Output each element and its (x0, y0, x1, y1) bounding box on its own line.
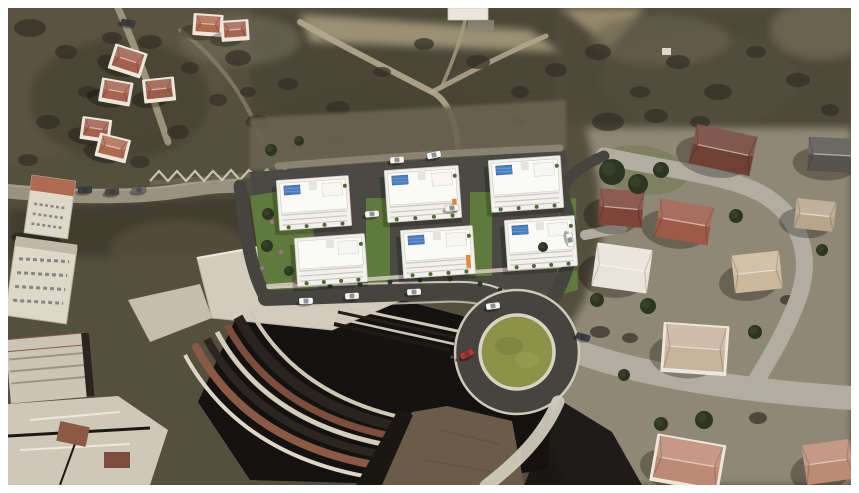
car-windshield (303, 299, 308, 304)
tree (261, 240, 273, 252)
penthouse (534, 162, 555, 176)
aerial-scene-svg (8, 8, 851, 485)
stair-core (326, 240, 335, 249)
grass-texture (515, 352, 539, 368)
tree (748, 325, 762, 339)
bush (14, 19, 46, 37)
bush (18, 154, 38, 166)
bush (138, 35, 162, 49)
car-windshield (349, 293, 354, 298)
hilltop-building (448, 8, 488, 20)
car-windshield (109, 189, 114, 194)
render-detail (478, 282, 483, 287)
solar-panel (392, 175, 409, 185)
penthouse (446, 232, 467, 246)
bush (630, 86, 650, 98)
car-windshield (125, 20, 131, 26)
bush (749, 412, 767, 424)
tree (628, 174, 648, 194)
bush (209, 94, 227, 106)
bush (622, 333, 638, 343)
pedestrian (450, 355, 453, 358)
render-detail (655, 164, 664, 173)
car-windshield (490, 303, 496, 308)
render-detail (262, 241, 269, 248)
tree (284, 266, 294, 276)
bush (585, 44, 611, 60)
light-mottle (590, 15, 730, 65)
hilltop-pad (468, 20, 494, 30)
stair-core (417, 172, 426, 181)
tree (294, 136, 304, 146)
tree (262, 208, 274, 220)
render-detail (285, 267, 291, 273)
timber-accent (466, 255, 471, 268)
bush (181, 62, 199, 74)
flower-bed (270, 220, 274, 224)
car-windshield (567, 237, 573, 243)
bush (786, 73, 810, 87)
bush (278, 78, 298, 90)
render-detail (295, 137, 301, 143)
solar-panel (496, 165, 513, 175)
stair-core (520, 162, 529, 171)
tree (816, 244, 828, 256)
tree (618, 369, 630, 381)
bush (592, 113, 624, 131)
apartment-block (379, 165, 462, 227)
bush (373, 67, 391, 77)
bush (414, 38, 434, 50)
tree (695, 411, 713, 429)
bush (545, 63, 567, 77)
car-windshield (136, 187, 141, 192)
render-detail (642, 300, 651, 309)
car-windshield (82, 188, 87, 193)
render-detail (602, 162, 616, 176)
tree (590, 293, 604, 307)
stair-core (309, 182, 318, 191)
solar-panel (408, 235, 425, 245)
bush (102, 32, 122, 44)
brick-terrace-patch (104, 452, 130, 468)
tree (729, 209, 743, 223)
car-windshield (449, 205, 454, 210)
flower-bed (279, 250, 283, 254)
tree (653, 162, 669, 178)
left-block-b (8, 332, 95, 403)
pedestrian (455, 358, 458, 361)
tree (538, 242, 548, 252)
render-detail (591, 294, 599, 302)
render-detail (263, 209, 270, 216)
car-windshield (369, 211, 374, 216)
bush (36, 115, 60, 129)
grass-texture (495, 337, 523, 355)
car-windshield (431, 152, 437, 158)
bush (666, 55, 690, 69)
penthouse (338, 240, 359, 254)
bush (704, 84, 732, 100)
bush (466, 55, 490, 69)
flower-bed (260, 266, 264, 270)
tree (265, 144, 277, 156)
render-detail (730, 210, 738, 218)
render-detail (655, 418, 663, 426)
solar-panel (284, 185, 301, 195)
car-windshield (394, 157, 399, 162)
render-detail (266, 145, 273, 152)
render-detail (749, 326, 757, 334)
bush (240, 87, 256, 97)
bush (225, 50, 251, 66)
apartment-block (483, 156, 564, 218)
bush (746, 46, 766, 58)
car-windshield (411, 289, 416, 294)
bush (130, 156, 150, 168)
new-development (240, 100, 604, 318)
bush (590, 326, 610, 338)
apartment-block (395, 226, 476, 284)
bush (55, 45, 77, 59)
bush (167, 125, 189, 139)
tree (599, 159, 625, 185)
render-detail (388, 280, 393, 285)
roof-ridge (229, 29, 241, 30)
render-detail (817, 245, 824, 252)
render-detail (539, 243, 545, 249)
apartment-block (271, 176, 352, 236)
bush (821, 104, 839, 116)
tree (640, 298, 656, 314)
penthouse (432, 172, 453, 186)
left-edge-facade (8, 236, 78, 324)
penthouse (322, 182, 343, 196)
render-detail (619, 370, 626, 377)
bush (644, 109, 668, 123)
solar-panel (512, 225, 529, 235)
aerial-render-photo (0, 0, 859, 493)
render-detail (630, 176, 641, 187)
tree (654, 417, 668, 431)
bush (511, 86, 529, 98)
apartment-block (289, 234, 368, 292)
stair-core (536, 222, 545, 231)
field-shed (662, 48, 671, 55)
stair-core (433, 232, 442, 241)
render-detail (697, 413, 707, 423)
